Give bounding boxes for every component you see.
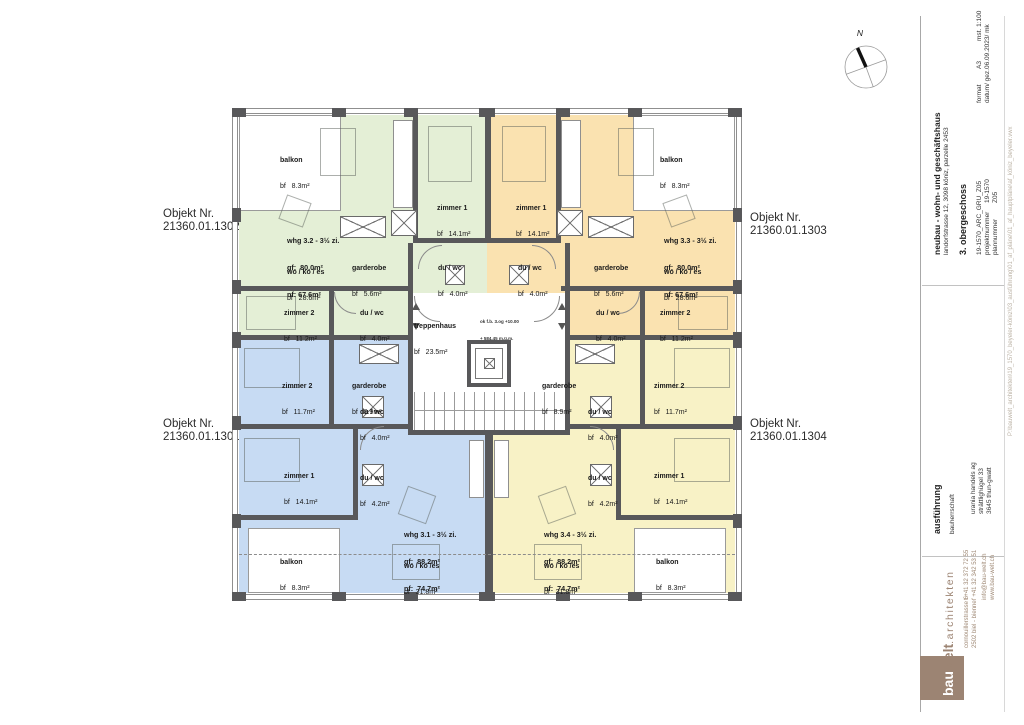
room-name: zimmer 2 — [282, 383, 315, 392]
room-name: garderobe — [542, 383, 576, 392]
objekt-label-1301: Objekt Nr. 21360.01.1301 — [163, 418, 240, 444]
room-label-balkon-orange: balkon bf 8.3m² — [660, 140, 690, 208]
room-area: bf 8.3m² — [280, 585, 310, 594]
room-area: bf 4.0m² — [588, 435, 618, 444]
room-name: du / wc — [588, 475, 618, 484]
scale-value: mst. 1:100 — [976, 11, 983, 41]
objekt-caption: Objekt Nr. — [163, 208, 240, 221]
wall-segment — [485, 115, 491, 243]
panel-divider — [922, 285, 1004, 286]
room-label-duwc2-blue: du / wc bf 4.0m² — [360, 392, 390, 460]
room-label-living-yellow: wo / ko /es bf 31.8m² — [544, 546, 579, 614]
wall-segment — [570, 335, 735, 340]
pillar — [733, 280, 742, 294]
room-name: du / wc — [596, 310, 626, 319]
pillar — [232, 208, 241, 222]
unit-title: whg 3.3 - 3½ zi. — [664, 236, 716, 245]
objekt-label-1303: Objekt Nr. 21360.01.1303 — [750, 212, 827, 238]
stair-divider — [414, 410, 562, 411]
unit-title: whg 3.4 - 3½ zi. — [544, 530, 596, 539]
room-name: balkon — [656, 559, 686, 568]
table-outline — [320, 128, 356, 176]
logo-bau: bau — [940, 671, 956, 696]
logo-welt: welt — [940, 644, 956, 671]
room-area: bf 8.3m² — [656, 585, 686, 594]
vent-triangle-icon — [558, 303, 566, 310]
firm-tel: t +41 32 372 72 55 — [964, 550, 972, 600]
room-area: bf 4.2m² — [588, 501, 618, 510]
room-area: bf 14.1m² — [437, 231, 470, 240]
pillar — [404, 108, 418, 117]
room-area: bf 31.8m² — [404, 589, 439, 598]
kitchen-yellow — [494, 440, 509, 498]
bed-outline — [428, 126, 472, 182]
room-label-garderobe-yellow: garderobe bf 8.9m² — [542, 366, 576, 434]
room-name: garderobe — [352, 383, 386, 392]
datum-label: datum/ gez. — [984, 69, 992, 103]
wardrobe-box — [340, 216, 386, 238]
room-area: bf 11.2m² — [660, 336, 693, 345]
objekt-caption: Objekt Nr. — [750, 418, 827, 431]
shaft-box — [557, 210, 583, 236]
unit-title: whg 3.1 - 3½ zi. — [404, 530, 456, 539]
room-label-duwc1-blue: du / wc bf 4.2m² — [360, 458, 390, 526]
pillar — [479, 592, 495, 601]
firm-city: 2502 biel - bienne — [972, 596, 980, 648]
room-name: wo / ko /es — [404, 563, 439, 572]
room-area: bf 11.2m² — [284, 336, 317, 345]
logo-architekten: .architekten — [944, 570, 956, 643]
projektnummer-value: 19-1570 — [984, 179, 991, 203]
meta-block: formatA3mst. 1:100 datum/ gez.06.09.2023… — [976, 11, 992, 103]
datum-row: datum/ gez.06.09.2023/ mk — [984, 11, 992, 103]
pillar — [332, 108, 346, 117]
room-name: du / wc — [588, 409, 618, 418]
room-name: wo / ko /es — [544, 563, 579, 572]
room-name: zimmer 1 — [654, 473, 687, 482]
client-street: strättlighügel 33 — [978, 462, 986, 514]
file-path-text: P:\bauwelt_architekten\19_1570_beyeler-k… — [1008, 56, 1014, 436]
pillar — [733, 514, 742, 528]
vent-triangle-icon — [558, 323, 566, 330]
room-name: zimmer 1 — [284, 473, 317, 482]
objekt-label-1304: Objekt Nr. 21360.01.1304 — [750, 418, 827, 444]
objekt-label-1302: Objekt Nr. 21360.01.1302 — [163, 208, 240, 234]
format-row: formatA3mst. 1:100 — [976, 11, 984, 103]
objekt-number: 21360.01.1301 — [163, 431, 240, 444]
execution-title: ausführung — [932, 485, 942, 535]
datum-value: 06.09.2023/ mk — [984, 24, 991, 69]
panel-edge-line — [1004, 16, 1005, 712]
room-area: bf 4.0m² — [360, 336, 390, 345]
room-label-balkon-blue: balkon bf 8.3m² — [280, 542, 310, 610]
room-name: garderobe — [352, 265, 386, 274]
plannummer-label: plannummer — [992, 203, 1000, 255]
room-name: balkon — [280, 559, 310, 568]
panel-border-line — [920, 16, 921, 712]
room-name: zimmer 2 — [284, 310, 317, 319]
table-outline — [618, 128, 654, 176]
pillar — [728, 592, 742, 601]
room-label-zimmer1-green: zimmer 1 bf 14.1m² — [437, 188, 470, 256]
pillar — [232, 280, 241, 294]
north-label: N — [845, 28, 875, 38]
doc-code: 19-1570_ARC_GRU_Z05 — [976, 179, 984, 255]
pillar — [728, 108, 742, 117]
client-name: urania handels ag — [970, 462, 978, 514]
objekt-number: 21360.01.1302 — [163, 221, 240, 234]
pillar — [232, 514, 241, 528]
objekt-caption: Objekt Nr. — [750, 212, 827, 225]
room-label-living-blue: wo / ko /es bf 31.8m² — [404, 546, 439, 614]
room-name: du / wc — [360, 409, 390, 418]
room-name: du / wc — [360, 475, 390, 484]
room-name: zimmer 1 — [437, 205, 470, 214]
room-area: bf 4.2m² — [360, 501, 390, 510]
kitchen-blue — [469, 440, 484, 498]
firm-address: cornouillerstrasse 6 2502 biel - bienne — [964, 596, 979, 648]
floor-plan: balkon bf 8.3m² zimmer 1 bf 14.1m² whg 3… — [232, 108, 742, 600]
room-name: garderobe — [594, 265, 628, 274]
wall-segment — [329, 340, 334, 424]
room-area: bf 8.3m² — [280, 183, 310, 192]
room-label-zimmer2-blue: zimmer 2 bf 11.7m² — [282, 366, 315, 434]
room-label-zimmer2-orange: zimmer 2 bf 11.2m² — [660, 293, 693, 361]
titleblock-firm: bauwelt.architekten cornouillerstrasse 6… — [924, 552, 1002, 712]
wall-segment — [408, 243, 413, 435]
room-name: balkon — [280, 157, 310, 166]
room-name: balkon — [660, 157, 690, 166]
client-role: bauherrschaft — [949, 494, 956, 534]
pillar — [733, 208, 742, 222]
room-label-zimmer2-yellow: zimmer 2 bf 11.7m² — [654, 366, 687, 434]
elevator-symbol — [484, 358, 495, 369]
elevation-line1: ok f.b. 3.og +10.00 — [480, 319, 519, 325]
pillar — [628, 592, 642, 601]
room-label-zimmer1-orange: zimmer 1 bf 14.1m² — [516, 188, 549, 256]
wall-segment — [640, 286, 645, 340]
firm-logo: bauwelt.architekten — [940, 570, 956, 696]
firm-phone: t +41 32 372 72 55 f +41 32 342 53 51 — [964, 550, 979, 600]
room-name: wo / ko / es — [287, 269, 324, 278]
room-label-duwc2-orange: du / wc bf 4.0m² — [596, 293, 626, 361]
project-title: neubau - wohn- und geschäftshaus — [932, 112, 942, 255]
room-area: bf 4.0m² — [438, 291, 468, 300]
format-value: A3 — [976, 41, 984, 69]
room-name: du / wc — [518, 265, 548, 274]
room-name: zimmer 2 — [654, 383, 687, 392]
room-area: bf 14.1m² — [654, 499, 687, 508]
projektnummer-row: projektnummer19-1570 — [984, 179, 992, 255]
pillar — [232, 108, 246, 117]
room-area: bf 8.9m² — [542, 409, 576, 418]
elevation-line2: + 584.45 m.ü.m. — [480, 336, 519, 342]
unit-title: whg 3.2 - 3½ zi. — [287, 236, 339, 245]
titleblock-project: neubau - wohn- und geschäftshaus landorf… — [932, 20, 1004, 285]
room-label-balkon-green: balkon bf 8.3m² — [280, 140, 310, 208]
plannummer-value: Z05 — [992, 192, 999, 203]
room-label-duwc2-yellow: du / wc bf 4.0m² — [588, 392, 618, 460]
shaft-box — [391, 210, 417, 236]
objekt-number: 21360.01.1303 — [750, 225, 827, 238]
stair-flight — [414, 392, 562, 430]
room-name: zimmer 1 — [516, 205, 549, 214]
file-path-note: P:\bauwelt_architekten\19_1570_beyeler-k… — [1008, 56, 1017, 436]
compass-icon — [838, 40, 894, 96]
floor-title: 3. obergeschoss — [958, 184, 968, 255]
format-label: format — [976, 69, 984, 103]
room-area: bf 8.3m² — [660, 183, 690, 192]
kitchen-orange — [561, 120, 581, 208]
room-label-zimmer1-blue: zimmer 1 bf 14.1m² — [284, 456, 317, 524]
pillar — [232, 416, 241, 430]
client-block: urania handels ag strättlighügel 33 3645… — [970, 462, 994, 514]
room-name: du / wc — [438, 265, 468, 274]
firm-fax: f +41 32 342 53 51 — [972, 550, 980, 600]
room-area: bf 14.1m² — [284, 499, 317, 508]
firm-email: info@bau-welt.ch — [982, 554, 990, 600]
room-area: bf 4.0m² — [360, 435, 390, 444]
room-name: wo / ko / es — [664, 269, 701, 278]
room-label-zimmer1-yellow: zimmer 1 bf 14.1m² — [654, 456, 687, 524]
pillar — [628, 108, 642, 117]
project-address: landorfstrasse 12, 3098 köniz, parzelle … — [943, 127, 950, 255]
pillar — [733, 332, 742, 348]
objekt-number: 21360.01.1304 — [750, 431, 827, 444]
wardrobe-box — [588, 216, 634, 238]
pillar — [556, 108, 570, 117]
room-label-duwc2-green: du / wc bf 4.0m² — [360, 293, 390, 361]
room-area: bf 4.0m² — [518, 291, 548, 300]
room-name: zimmer 2 — [660, 310, 693, 319]
kitchen-green — [393, 120, 413, 208]
pillar — [232, 332, 241, 348]
projektnummer-label: projektnummer — [984, 203, 992, 255]
wall-segment — [485, 435, 493, 593]
room-label-balkon-yellow: balkon bf 8.3m² — [656, 542, 686, 610]
objekt-caption: Objekt Nr. — [163, 418, 240, 431]
room-area: bf 23.5m² — [414, 349, 456, 358]
pillar — [479, 108, 495, 117]
firm-street: cornouillerstrasse 6 — [964, 596, 972, 648]
room-area: bf 11.7m² — [282, 409, 315, 418]
pillar — [232, 592, 246, 601]
bed-outline — [502, 126, 546, 182]
room-area: bf 14.1m² — [516, 231, 549, 240]
room-label-zimmer2-green: zimmer 2 bf 11.2m² — [284, 293, 317, 361]
pillar — [733, 416, 742, 430]
titleblock-execution: ausführung bauherrschaft urania handels … — [932, 426, 1004, 556]
elevation-note: ok f.b. 3.og +10.00 + 584.45 m.ü.m. — [480, 308, 519, 352]
room-name: treppenhaus — [414, 323, 456, 332]
firm-web: www.bau-welt.ch — [990, 554, 998, 600]
plan-sheet: N Objekt Nr. 21360.01.1302 Objekt Nr. 21… — [0, 0, 1024, 725]
plannummer-row: plannummerZ05 — [992, 179, 1000, 255]
pillar — [332, 592, 346, 601]
wall-segment — [353, 424, 358, 520]
room-label-duwc1-orange: du / wc bf 4.0m² — [518, 248, 548, 316]
client-city: 3645 thun-gwatt — [986, 462, 994, 514]
room-area: bf 11.7m² — [654, 409, 687, 418]
room-area: bf 4.0m² — [596, 336, 626, 345]
room-label-treppenhaus: treppenhaus bf 23.5m² — [414, 306, 456, 374]
room-area: bf 31.8m² — [544, 589, 579, 598]
wall-segment — [640, 340, 645, 424]
firm-web-block: info@bau-welt.ch www.bau-welt.ch — [982, 554, 997, 600]
doc-number-block: 19-1570_ARC_GRU_Z05 projektnummer19-1570… — [976, 179, 1000, 255]
room-name: du / wc — [360, 310, 390, 319]
